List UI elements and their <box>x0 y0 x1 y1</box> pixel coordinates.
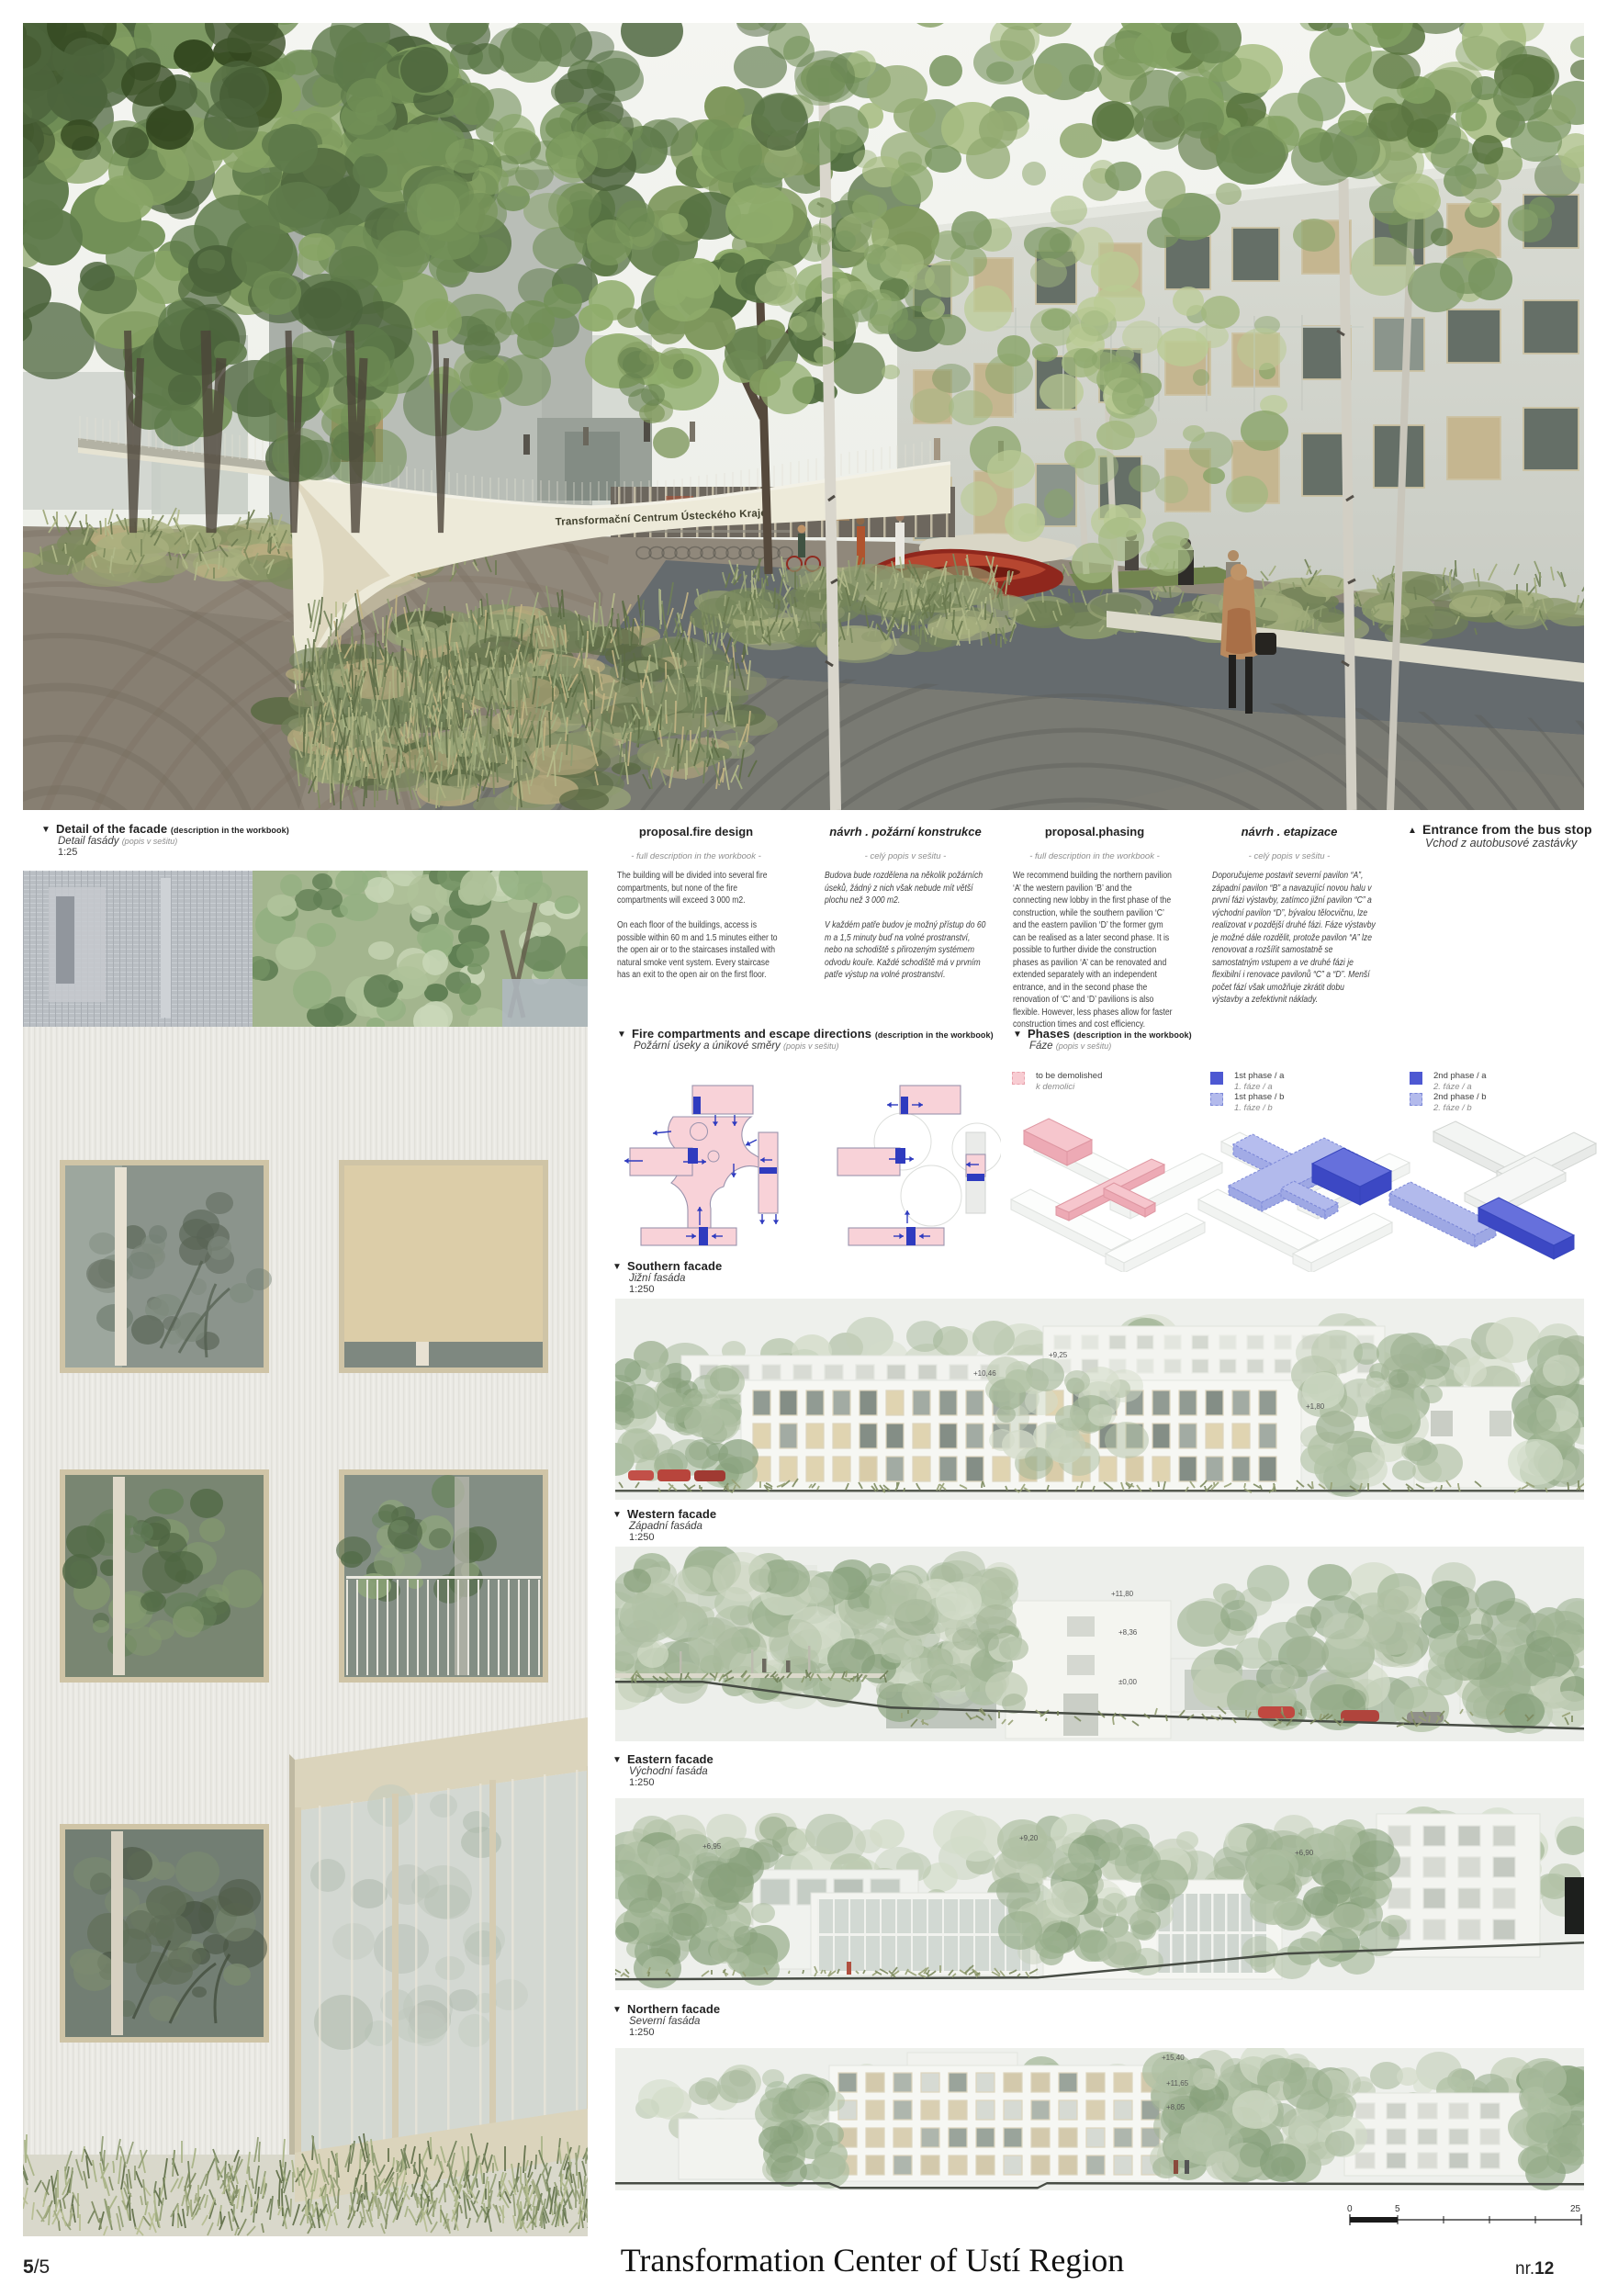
svg-text:+8,36: +8,36 <box>1118 1628 1138 1637</box>
svg-text:+15,40: +15,40 <box>1162 2054 1185 2062</box>
svg-text:25: 25 <box>1570 2204 1581 2214</box>
svg-text:+1,80: +1,80 <box>1306 1402 1325 1411</box>
svg-text:+9,20: +9,20 <box>1019 1834 1039 1842</box>
svg-text:+10,46: +10,46 <box>973 1369 996 1378</box>
svg-text:±0,00: ±0,00 <box>1118 1678 1138 1686</box>
svg-text:+8,05: +8,05 <box>1166 2103 1186 2111</box>
svg-text:+6,95: +6,95 <box>702 1842 722 1851</box>
svg-text:0: 0 <box>1347 2204 1353 2214</box>
svg-text:+6,90: +6,90 <box>1295 1849 1314 1857</box>
svg-text:+11,65: +11,65 <box>1166 2079 1189 2088</box>
svg-text:5: 5 <box>1395 2204 1400 2214</box>
svg-text:+11,80: +11,80 <box>1111 1590 1134 1598</box>
svg-text:+9,25: +9,25 <box>1049 1351 1068 1359</box>
